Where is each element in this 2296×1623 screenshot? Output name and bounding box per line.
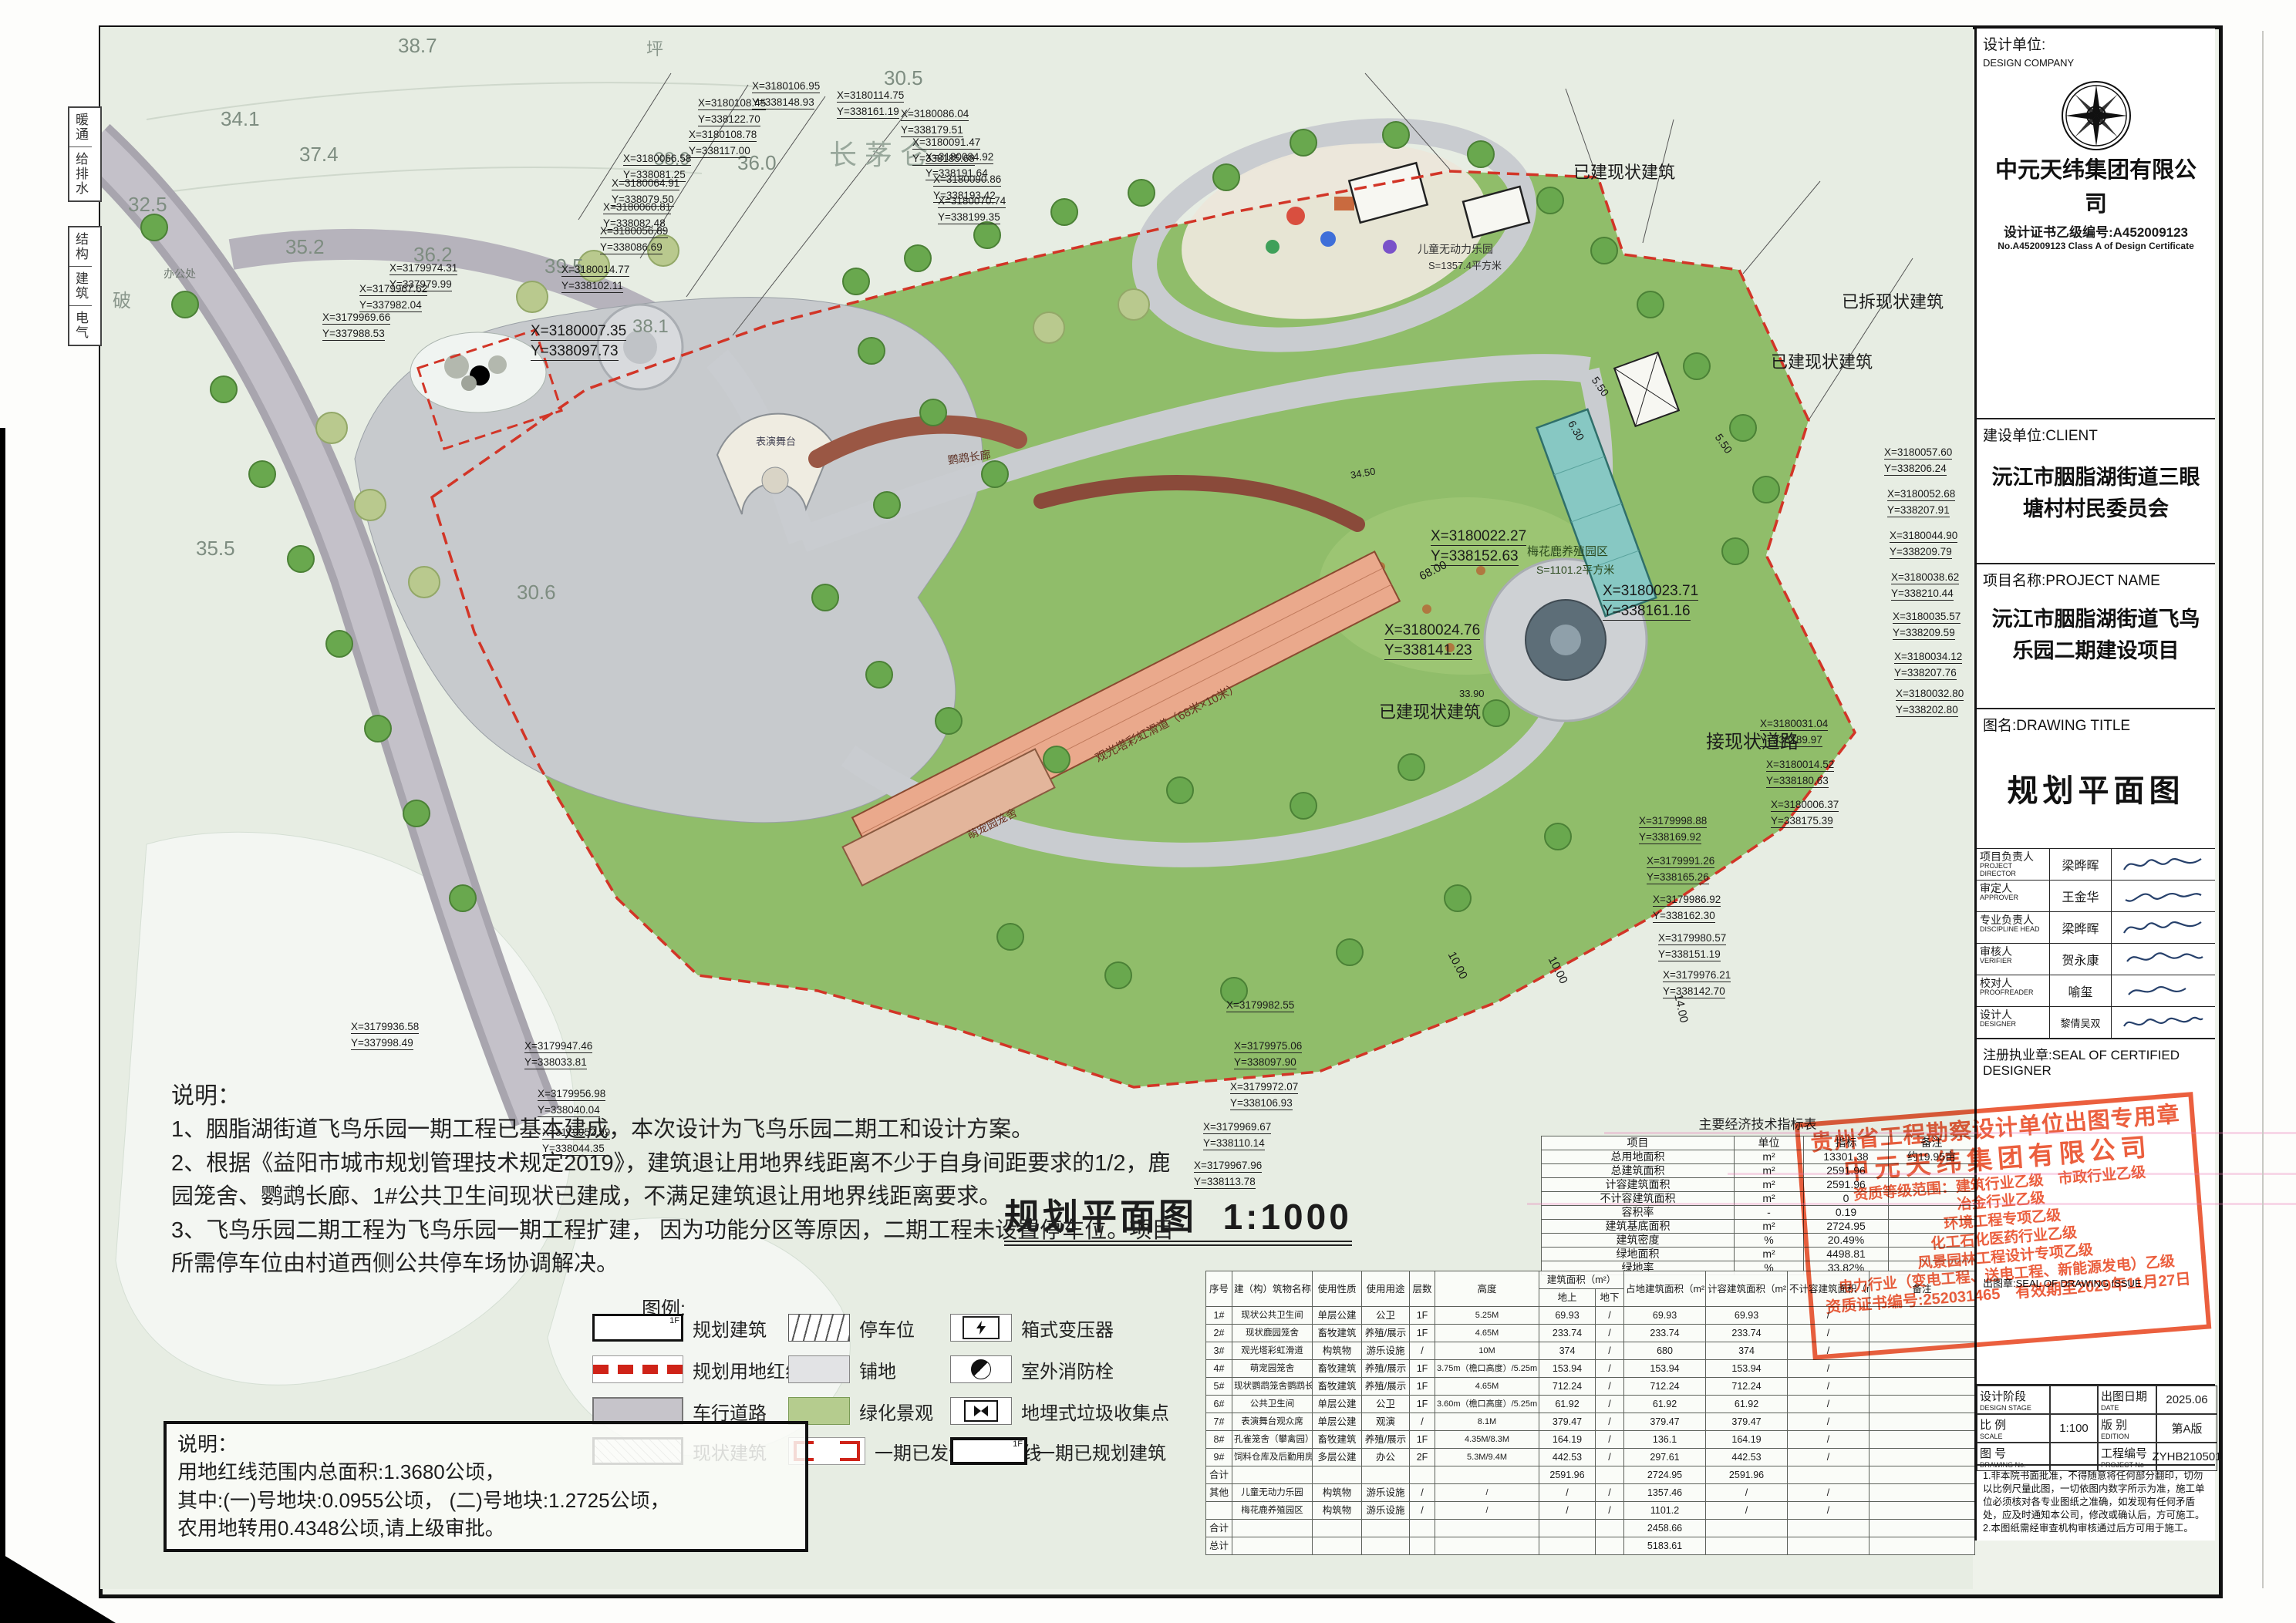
table-cell: 萌宠园笼舍 <box>1232 1360 1313 1378</box>
personnel-row: 专业负责人DISCIPLINE HEAD 梁晔晖 <box>1977 911 2215 943</box>
table-cell: 2591.96 <box>1539 1466 1596 1484</box>
table-cell: 观演 <box>1362 1413 1410 1431</box>
table-cell <box>1232 1537 1313 1555</box>
table-cell <box>1788 1520 1870 1537</box>
table-cell: 4.65M <box>1435 1378 1539 1396</box>
col-header: 占地建筑面积（m²） <box>1624 1271 1706 1307</box>
table-cell: 2F <box>1410 1449 1435 1466</box>
date-value: 2025.06 <box>2156 1386 2217 1414</box>
table-cell: 5# <box>1206 1378 1232 1396</box>
table-cell <box>1870 1378 1975 1396</box>
plan-notes: 说明： 1、胭脂湖街道飞鸟乐园一期工程已基本建成，本次设计为飞鸟乐园二期工和设计… <box>171 1076 1189 1281</box>
project-name: 沅江市胭脂湖街道飞鸟乐园二期建设项目 <box>1977 604 2215 666</box>
landuse-note-line: 其中:(一)号地块:0.0955公顷， (二)号地块:1.2725公顷， <box>177 1487 794 1514</box>
table-cell: 6# <box>1206 1396 1232 1413</box>
landuse-note-line: 说明： <box>177 1430 794 1458</box>
signature <box>2112 849 2215 880</box>
landuse-note-line: 用地红线范围内总面积:1.3680公顷， <box>177 1458 794 1486</box>
table-cell: / <box>1788 1484 1870 1502</box>
personnel-row: 审核人VERIFIER 贺永康 <box>1977 943 2215 975</box>
table-cell: 容积率 <box>1542 1206 1735 1220</box>
table-cell <box>1435 1520 1539 1537</box>
person-name: 王金华 <box>2050 881 2112 911</box>
table-cell: 游乐设施 <box>1362 1502 1410 1520</box>
table-cell: / <box>1788 1413 1870 1431</box>
legend-label: 停车位 <box>859 1315 915 1342</box>
table-cell: 680 <box>1624 1342 1706 1360</box>
table-cell: 1F <box>1410 1360 1435 1378</box>
table-cell: 总计 <box>1206 1537 1232 1555</box>
table-cell: 构筑物 <box>1313 1484 1362 1502</box>
table-cell: 饲料仓库及后勤用房 <box>1232 1449 1313 1466</box>
table-cell: 计容建筑面积 <box>1542 1178 1735 1192</box>
table-cell: 现状鹿园笼舍 <box>1232 1325 1313 1342</box>
table-cell <box>1313 1466 1362 1484</box>
col-header: 层数 <box>1410 1271 1435 1307</box>
table-cell: 绿地面积 <box>1542 1248 1735 1261</box>
table-cell: 379.47 <box>1539 1413 1596 1431</box>
signoff-strip-top: 暖通 给排水 <box>68 106 102 202</box>
legend-item: 铺地 <box>788 1355 896 1383</box>
personnel-row: 校对人PROOFREADER 喻玺 <box>1977 975 2215 1006</box>
table-cell: / <box>1596 1396 1624 1413</box>
table-cell: 单层公建 <box>1313 1396 1362 1413</box>
table-cell: m² <box>1735 1248 1804 1261</box>
scan-artifact <box>1604 1132 2296 1134</box>
signature <box>2112 944 2215 975</box>
titleblock-note-line: 2.本图纸需经审查机构审核通过后方可用于施工。 <box>1983 1522 2209 1535</box>
table-row: 总计5183.61 <box>1206 1537 1975 1555</box>
stage-value <box>2050 1386 2098 1414</box>
table-cell <box>1206 1502 1232 1520</box>
table-cell: 4# <box>1206 1360 1232 1378</box>
table-row: 合计2458.66 <box>1206 1520 1975 1537</box>
table-cell: / <box>1435 1502 1539 1520</box>
table-cell: 畜牧建筑 <box>1313 1431 1362 1449</box>
table-cell <box>1870 1449 1975 1466</box>
table-cell: 单层公建 <box>1313 1413 1362 1431</box>
col-header: 使用用途 <box>1362 1271 1410 1307</box>
table-cell: 164.19 <box>1706 1431 1788 1449</box>
table-cell <box>1870 1431 1975 1449</box>
client-section: 建设单位:CLIENT 沅江市胭脂湖街道三眼塘村村民委员会 <box>1977 418 2215 563</box>
table-cell: 4.35M/8.3M <box>1435 1431 1539 1449</box>
table-cell: m² <box>1735 1164 1804 1178</box>
note-line: 3、飞鸟乐园二期工程为飞鸟乐园一期工程扩建， 因为功能分区等原因，二期工程未设置… <box>171 1214 1189 1281</box>
table-cell: 单层公建 <box>1313 1307 1362 1325</box>
table-cell: 2458.66 <box>1624 1520 1706 1537</box>
table-cell: 1F <box>1410 1307 1435 1325</box>
legend-label: 绿化景观 <box>859 1398 933 1425</box>
table-cell: 442.53 <box>1706 1449 1788 1466</box>
personnel-row: 项目负责人PROJECT DIRECTOR 梁晔晖 <box>1977 848 2215 880</box>
table-cell: / <box>1596 1431 1624 1449</box>
col-header: 高度 <box>1435 1271 1539 1307</box>
table-cell: / <box>1596 1502 1624 1520</box>
seal-label: 注册执业章:SEAL OF CERTIFIED DESIGNER <box>1977 1039 2215 1079</box>
table-cell <box>1362 1466 1410 1484</box>
person-name: 梁晔晖 <box>2050 912 2112 943</box>
table-cell: 1F <box>1410 1378 1435 1396</box>
legend-item: 地埋式垃圾收集点 <box>950 1397 1169 1425</box>
drawing-title-section: 图名:DRAWING TITLE 规划平面图 <box>1977 708 2215 848</box>
signature <box>2112 912 2215 943</box>
table-cell: 建筑基底面积 <box>1542 1220 1735 1234</box>
table-cell: 69.93 <box>1624 1307 1706 1325</box>
table-cell: 1F <box>1410 1431 1435 1449</box>
table-row: 7#表演舞台观众席单层公建观演/8.1M379.47/379.47379.47/ <box>1206 1413 1975 1431</box>
table-cell <box>1706 1520 1788 1537</box>
table-cell: / <box>1539 1502 1596 1520</box>
table-cell: / <box>1539 1484 1596 1502</box>
table-cell <box>1596 1466 1624 1484</box>
table-cell: 公卫 <box>1362 1396 1410 1413</box>
legend-item: 1F 一期已规划建筑 <box>950 1437 1166 1465</box>
legend-item: 规划用地红线 <box>592 1355 804 1383</box>
signature <box>2112 881 2215 911</box>
table-cell: 61.92 <box>1624 1396 1706 1413</box>
parking-swatch <box>788 1314 850 1342</box>
table-cell: / <box>1410 1484 1435 1502</box>
table-cell: 8# <box>1206 1431 1232 1449</box>
col-header: 建（构）筑物名称 <box>1232 1271 1313 1307</box>
table-cell: 1357.46 <box>1624 1484 1706 1502</box>
table-cell <box>1596 1537 1624 1555</box>
table-cell: 233.74 <box>1706 1325 1788 1342</box>
table-cell: 观光塔彩虹滑道 <box>1232 1342 1313 1360</box>
personnel-row: 审定人APPROVER 王金华 <box>1977 880 2215 911</box>
table-cell: / <box>1788 1378 1870 1396</box>
table-cell: 孔雀笼舍（攀禽园） <box>1232 1431 1313 1449</box>
notes-body: 1、胭脂湖街道飞鸟乐园一期工程已基本建成，本次设计为飞鸟乐园二期工和设计方案。2… <box>171 1113 1189 1281</box>
table-cell: 61.92 <box>1706 1396 1788 1413</box>
table-cell: 69.93 <box>1706 1307 1788 1325</box>
table-cell: 1F <box>1410 1325 1435 1342</box>
table-cell: 2# <box>1206 1325 1232 1342</box>
table-cell: 69.93 <box>1539 1307 1596 1325</box>
table-cell <box>1706 1537 1788 1555</box>
col-header: 地下 <box>1596 1289 1624 1307</box>
table-cell: 61.92 <box>1539 1396 1596 1413</box>
table-cell: 10M <box>1435 1342 1539 1360</box>
table-cell: - <box>1735 1206 1804 1220</box>
transformer-icon <box>950 1314 1012 1342</box>
table-cell: 合计 <box>1206 1520 1232 1537</box>
table-cell <box>1539 1537 1596 1555</box>
table-cell: 233.74 <box>1624 1325 1706 1342</box>
table-cell <box>1435 1537 1539 1555</box>
table-cell: 136.1 <box>1624 1431 1706 1449</box>
table-cell: / <box>1788 1396 1870 1413</box>
table-cell: 养殖/展示 <box>1362 1378 1410 1396</box>
col-header: 建筑面积（m²） <box>1539 1271 1624 1289</box>
table-cell: 1101.2 <box>1624 1502 1706 1520</box>
legend-label: 室外消防栓 <box>1021 1356 1114 1383</box>
notes-title: 说明： <box>171 1076 1189 1110</box>
table-cell: / <box>1596 1360 1624 1378</box>
table-cell: / <box>1596 1342 1624 1360</box>
table-cell <box>1313 1537 1362 1555</box>
table-cell: / <box>1410 1342 1435 1360</box>
table-cell: 5.25M <box>1435 1307 1539 1325</box>
table-cell <box>1788 1466 1870 1484</box>
table-cell <box>1435 1466 1539 1484</box>
table-cell: 构筑物 <box>1313 1342 1362 1360</box>
table-row: 合计2591.962724.952591.96 <box>1206 1466 1975 1484</box>
table-cell: 养殖/展示 <box>1362 1325 1410 1342</box>
table-cell: 3.75m（檐口高度）/5.25m <box>1435 1360 1539 1378</box>
table-cell: / <box>1788 1360 1870 1378</box>
table-cell: / <box>1596 1325 1624 1342</box>
table-cell: 构筑物 <box>1313 1502 1362 1520</box>
legend-item: 绿化景观 <box>788 1397 933 1425</box>
table-row: 4#萌宠园笼舍畜牧建筑养殖/展示1F3.75m（檐口高度）/5.25m153.9… <box>1206 1360 1975 1378</box>
table-cell: 表演舞台观众席 <box>1232 1413 1313 1431</box>
table-cell <box>1232 1520 1313 1537</box>
table-cell <box>1232 1466 1313 1484</box>
table-cell <box>1362 1537 1410 1555</box>
scan-artifact <box>1527 1203 2296 1205</box>
person-name: 贺永康 <box>2050 944 2112 975</box>
table-cell: 游乐设施 <box>1362 1484 1410 1502</box>
table-cell <box>1870 1413 1975 1431</box>
table-cell: / <box>1788 1502 1870 1520</box>
table-cell: / <box>1410 1413 1435 1431</box>
table-cell: / <box>1706 1484 1788 1502</box>
table-row: 6#公共卫生间单层公建公卫1F3.60m（檐口高度）/5.25m61.92/61… <box>1206 1396 1975 1413</box>
table-cell <box>1539 1520 1596 1537</box>
table-cell: / <box>1410 1502 1435 1520</box>
titleblock-note-line: 1.非本院书面批准，不得随意将任何部分翻印，切勿以比例尺量此图，一切依图内数字所… <box>1983 1470 2209 1522</box>
table-cell: / <box>1596 1378 1624 1396</box>
hydrant-icon <box>950 1355 1012 1383</box>
table-cell <box>1870 1520 1975 1537</box>
table-cell: 合计 <box>1206 1466 1232 1484</box>
table-row: 8#孔雀笼舍（攀禽园）畜牧建筑养殖/展示1F4.35M/8.3M164.19/1… <box>1206 1431 1975 1449</box>
table-cell: 养殖/展示 <box>1362 1431 1410 1449</box>
table-row: 其他儿童无动力乐园构筑物游乐设施////1357.46// <box>1206 1484 1975 1502</box>
table-cell: 374 <box>1706 1342 1788 1360</box>
table-cell: 畜牧建筑 <box>1313 1360 1362 1378</box>
table-cell: 7# <box>1206 1413 1232 1431</box>
table-cell <box>1870 1502 1975 1520</box>
table-cell: 5.3M/9.4M <box>1435 1449 1539 1466</box>
table-cell: 其他 <box>1206 1484 1232 1502</box>
table-cell: 4.65M <box>1435 1325 1539 1342</box>
table-cell: 233.74 <box>1539 1325 1596 1342</box>
drawing-sheet: 暖通 给排水 结构 建筑 电气 38.730.534.137.438.936.0… <box>0 0 2296 1623</box>
waste-point-icon <box>950 1397 1012 1425</box>
legend-item: 箱式变压器 <box>950 1314 1114 1342</box>
table-cell: / <box>1788 1449 1870 1466</box>
meta-table: 设计阶段DESIGN STAGE 出图日期DATE 2025.06 比 例SCA… <box>1977 1384 2215 1471</box>
table-cell <box>1362 1520 1410 1537</box>
table-cell: 153.94 <box>1706 1360 1788 1378</box>
table-cell: 379.47 <box>1706 1413 1788 1431</box>
client-label: 建设单位:CLIENT <box>1977 419 2215 445</box>
table-cell: 442.53 <box>1539 1449 1596 1466</box>
signoff-cell: 电气 <box>69 306 92 345</box>
table-cell: 374 <box>1539 1342 1596 1360</box>
table-cell <box>1870 1396 1975 1413</box>
table-cell <box>1313 1520 1362 1537</box>
table-cell <box>1410 1466 1435 1484</box>
note-line: 2、根据《益阳市城市规划管理技术规定2019》，建筑退让用地界线距离不少于自身间… <box>171 1147 1189 1214</box>
table-cell: / <box>1788 1431 1870 1449</box>
scan-artifact <box>0 428 5 1623</box>
table-cell: 现状鹦鹉笼舍鹦鹉长廊 <box>1232 1378 1313 1396</box>
table-cell: 8.1M <box>1435 1413 1539 1431</box>
red-line-swatch <box>592 1355 683 1383</box>
titleblock-notes: 1.非本院书面批准，不得随意将任何部分翻印，切勿以比例尺量此图，一切依图内数字所… <box>1977 1464 2215 1538</box>
legend-label: 规划建筑 <box>693 1315 767 1342</box>
legend-item: 停车位 <box>788 1314 915 1342</box>
table-cell: 379.47 <box>1624 1413 1706 1431</box>
legend-label: 箱式变压器 <box>1021 1315 1114 1342</box>
legend-item: 1F 规划建筑 <box>592 1314 767 1342</box>
table-cell <box>1788 1537 1870 1555</box>
table-cell: / <box>1596 1484 1624 1502</box>
signoff-cell: 建筑 <box>69 267 92 306</box>
table-cell <box>1870 1360 1975 1378</box>
phase1-planned-building-swatch: 1F <box>950 1437 1027 1465</box>
note-line: 1、胭脂湖街道飞鸟乐园一期工程已基本建成，本次设计为飞鸟乐园二期工和设计方案。 <box>171 1113 1189 1147</box>
table-cell: / <box>1596 1449 1624 1466</box>
paving-swatch <box>788 1355 850 1383</box>
col-header: 项目 <box>1542 1136 1735 1150</box>
table-cell: m² <box>1735 1178 1804 1192</box>
col-header: 使用性质 <box>1313 1271 1362 1307</box>
table-cell: / <box>1706 1502 1788 1520</box>
table-cell: m² <box>1735 1220 1804 1234</box>
planned-building-swatch: 1F <box>592 1314 683 1342</box>
person-name: 梁晔晖 <box>2050 849 2112 880</box>
table-cell: 游乐设施 <box>1362 1342 1410 1360</box>
table-cell: 总用地面积 <box>1542 1150 1735 1164</box>
table-cell: 153.94 <box>1624 1360 1706 1378</box>
table-cell: 办公 <box>1362 1449 1410 1466</box>
signoff-cell: 给排水 <box>69 147 92 200</box>
table-cell: 1# <box>1206 1307 1232 1325</box>
legend-label: 一期已规划建筑 <box>1037 1438 1166 1465</box>
table-cell: 总建筑面积 <box>1542 1164 1735 1178</box>
scan-artifact <box>1728 1173 2296 1175</box>
landuse-note-box: 说明：用地红线范围内总面积:1.3680公顷，其中:(一)号地块:0.0955公… <box>164 1421 808 1552</box>
table-cell: 712.24 <box>1539 1378 1596 1396</box>
table-cell: / <box>1435 1484 1539 1502</box>
table-cell: / <box>1596 1413 1624 1431</box>
company-logo <box>2059 79 2133 153</box>
table-cell: 1F <box>1410 1396 1435 1413</box>
table-cell: 153.94 <box>1539 1360 1596 1378</box>
table-cell: 712.24 <box>1706 1378 1788 1396</box>
col-header: 地上 <box>1539 1289 1596 1307</box>
table-cell: 2591.96 <box>1706 1466 1788 1484</box>
project-section: 项目名称:PROJECT NAME 沅江市胭脂湖街道飞鸟乐园二期建设项目 <box>1977 563 2215 708</box>
table-cell: 2724.95 <box>1624 1466 1706 1484</box>
page-edge-line <box>2262 31 2264 1588</box>
table-cell: 梅花鹿养殖园区 <box>1232 1502 1313 1520</box>
table-row: 5#现状鹦鹉笼舍鹦鹉长廊畜牧建筑养殖/展示1F4.65M712.24/712.2… <box>1206 1378 1975 1396</box>
landuse-note-line: 农用地转用0.4348公顷,请上级审批。 <box>177 1514 794 1542</box>
signature <box>2112 975 2215 1006</box>
person-name: 喻玺 <box>2050 975 2112 1006</box>
col-header: 单位 <box>1735 1136 1804 1150</box>
certificate-number: 设计证书乙级编号:A452009123 <box>1977 221 2215 241</box>
project-name-label: 项目名称:PROJECT NAME <box>1977 564 2215 590</box>
table-cell: m² <box>1735 1150 1804 1164</box>
table-cell: 公共卫生间 <box>1232 1396 1313 1413</box>
scale-value: 1:100 <box>2050 1414 2098 1443</box>
drawing-title-label: 图名:DRAWING TITLE <box>1977 709 2215 735</box>
table-cell <box>1870 1537 1975 1555</box>
plan-title-scale: 1:1000 <box>1223 1197 1352 1237</box>
signoff-cell: 结构 <box>69 227 92 267</box>
client-name: 沅江市胭脂湖街道三眼塘村村民委员会 <box>1977 462 2215 524</box>
table-cell: 现状公共卫生间 <box>1232 1307 1313 1325</box>
table-cell <box>1870 1484 1975 1502</box>
col-header: 计容建筑面积（m²） <box>1706 1271 1788 1307</box>
table-cell: 297.61 <box>1624 1449 1706 1466</box>
table-cell: 多层公建 <box>1313 1449 1362 1466</box>
company-name: 中元天纬集团有限公司 <box>1977 154 2215 221</box>
design-company-label: 设计单位: DESIGN COMPANY <box>1977 29 2215 71</box>
table-cell <box>1596 1520 1624 1537</box>
table-cell: 建筑密度 <box>1542 1234 1735 1248</box>
signoff-cell: 暖通 <box>69 108 92 147</box>
legend-label: 地埋式垃圾收集点 <box>1021 1398 1169 1425</box>
table-cell: 5183.61 <box>1624 1537 1706 1555</box>
table-cell: 3.60m（檐口高度）/5.25m <box>1435 1396 1539 1413</box>
table-row: 9#饲料仓库及后勤用房多层公建办公2F5.3M/9.4M442.53/297.6… <box>1206 1449 1975 1466</box>
col-header: 序号 <box>1206 1271 1232 1307</box>
table-cell <box>1870 1466 1975 1484</box>
legend-label: 规划用地红线 <box>693 1356 804 1383</box>
signature <box>2112 1007 2215 1038</box>
certificate-number-en: No.A452009123 Class A of Design Certific… <box>1977 241 2215 251</box>
table-cell: 儿童无动力乐园 <box>1232 1484 1313 1502</box>
legend-item: 室外消防栓 <box>950 1355 1114 1383</box>
table-cell: 畜牧建筑 <box>1313 1378 1362 1396</box>
table-row: 梅花鹿养殖园区构筑物游乐设施////1101.2// <box>1206 1502 1975 1520</box>
table-cell: / <box>1596 1307 1624 1325</box>
table-cell: 畜牧建筑 <box>1313 1325 1362 1342</box>
table-cell: 164.19 <box>1539 1431 1596 1449</box>
landuse-note-body: 说明：用地红线范围内总面积:1.3680公顷，其中:(一)号地块:0.0955公… <box>177 1430 794 1543</box>
table-cell: 9# <box>1206 1449 1232 1466</box>
table-cell: 3# <box>1206 1342 1232 1360</box>
table-cell <box>1410 1520 1435 1537</box>
table-cell <box>1410 1537 1435 1555</box>
drawing-title: 规划平面图 <box>1977 766 2215 810</box>
table-cell: 公卫 <box>1362 1307 1410 1325</box>
table-cell: % <box>1735 1234 1804 1248</box>
person-name: 黎倩吴双 <box>2050 1007 2112 1038</box>
table-cell: 养殖/展示 <box>1362 1360 1410 1378</box>
edition-value: 第A版 <box>2156 1414 2217 1443</box>
signoff-strip-bottom: 结构 建筑 电气 <box>68 226 102 346</box>
table-cell: 712.24 <box>1624 1378 1706 1396</box>
legend-label: 铺地 <box>859 1356 896 1383</box>
personnel-row: 设计人DESIGNER 黎倩吴双 <box>1977 1006 2215 1038</box>
